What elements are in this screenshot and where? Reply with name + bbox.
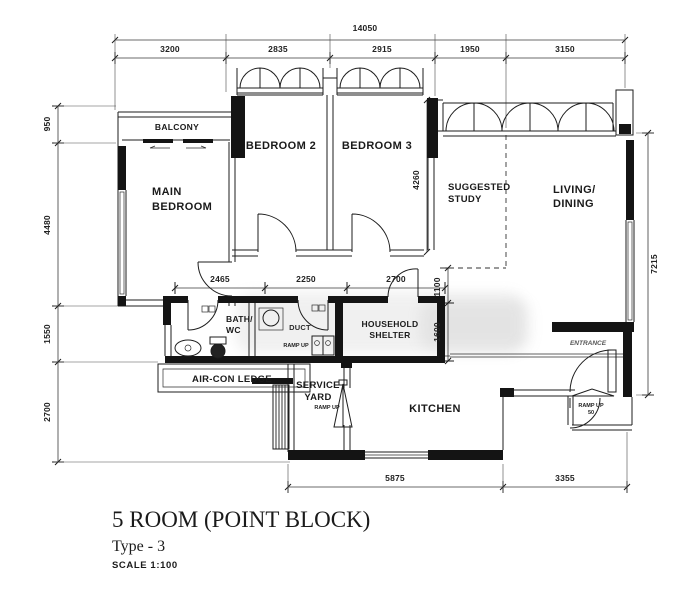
dim-right-1: 7215 [649, 254, 659, 274]
living-label-1: LIVING/ [553, 184, 596, 196]
dimension-labels: 14050 3200 2835 2915 1950 3150 950 4480 … [42, 23, 659, 483]
study-label-1: SUGGESTED [448, 182, 510, 193]
service-yard-label-1: SERVICE [296, 380, 340, 391]
bedroom3-door [352, 214, 390, 252]
shelter-label-2: SHELTER [369, 330, 410, 340]
dim-study-offset: 1100 [432, 277, 442, 296]
kitchen-label: KITCHEN [409, 403, 461, 415]
living-label-2: DINING [553, 198, 594, 210]
dim-shelter-height: 1600 [432, 322, 442, 342]
living-dining-window [626, 220, 634, 322]
study-label-2: STUDY [448, 194, 482, 205]
plan-title: 5 ROOM (POINT BLOCK) [112, 507, 370, 532]
bath-label-2: WC [226, 325, 241, 335]
main-bedroom-window [118, 190, 126, 296]
toilet-bowl [210, 337, 226, 358]
shelter-label-1: HOUSEHOLD [361, 319, 418, 329]
dim-mid-2: 2250 [296, 274, 316, 284]
balcony-label: BALCONY [155, 122, 199, 132]
dim-left-4: 2700 [42, 402, 52, 422]
dim-top-3: 2915 [372, 44, 392, 54]
entrance-door [570, 350, 616, 428]
dim-top-4: 1950 [460, 44, 480, 54]
duct-label: DUCT [289, 323, 311, 332]
floor-plan-drawing: BALCONY MAIN BEDROOM BEDROOM 2 BEDROOM 3… [0, 0, 696, 600]
dim-bottom-1: 5875 [385, 473, 405, 483]
bath-wc-door [188, 300, 218, 330]
bedroom3-label: BEDROOM 3 [342, 140, 412, 152]
bath2-ramp-label: RAMP UP [283, 343, 309, 349]
plan-scale: SCALE 1:100 [112, 560, 178, 571]
room-labels: BALCONY MAIN BEDROOM BEDROOM 2 BEDROOM 3… [152, 122, 607, 416]
living-casement-window [446, 103, 614, 131]
bedroom2-door [258, 214, 296, 252]
entrance-label: ENTRANCE [570, 340, 607, 347]
service-yard-label-2: YARD [304, 392, 331, 403]
dim-left-1: 950 [42, 117, 52, 132]
floor-plan-page: BALCONY MAIN BEDROOM BEDROOM 2 BEDROOM 3… [0, 0, 696, 600]
kitchen-window [365, 452, 428, 458]
main-bedroom-label-2: BEDROOM [152, 201, 212, 213]
plan-subtitle: Type - 3 [112, 538, 165, 555]
dim-mid-3: 2700 [386, 274, 406, 284]
entrance-ramp-label-2: 50 [588, 410, 594, 416]
bedroom2-label: BEDROOM 2 [246, 140, 316, 152]
main-bedroom-label-1: MAIN [152, 186, 182, 198]
dim-top-total: 14050 [353, 23, 378, 33]
dim-left-3: 1550 [42, 324, 52, 344]
bedroom3-casement-window [340, 68, 420, 88]
bath-label-1: BATH/ [226, 314, 253, 324]
title-block: 5 ROOM (POINT BLOCK) Type - 3 SCALE 1:10… [112, 507, 370, 571]
dim-top-2: 2835 [268, 44, 288, 54]
entrance-ramp-label-1: RAMP UP [578, 403, 604, 409]
wash-basin [175, 340, 201, 356]
dim-left-2: 4480 [42, 215, 52, 235]
service-ramp-label: RAMP UP [314, 405, 340, 411]
dim-bottom-2: 3355 [555, 473, 575, 483]
dim-mid-1: 2465 [210, 274, 230, 284]
aircon-ledge-label: AIR-CON LEDGE [192, 374, 272, 385]
dim-top-1: 3200 [160, 44, 180, 54]
dim-bedroom3-height: 4260 [411, 170, 421, 190]
dim-top-5: 3150 [555, 44, 575, 54]
bedroom2-casement-window [240, 68, 320, 88]
